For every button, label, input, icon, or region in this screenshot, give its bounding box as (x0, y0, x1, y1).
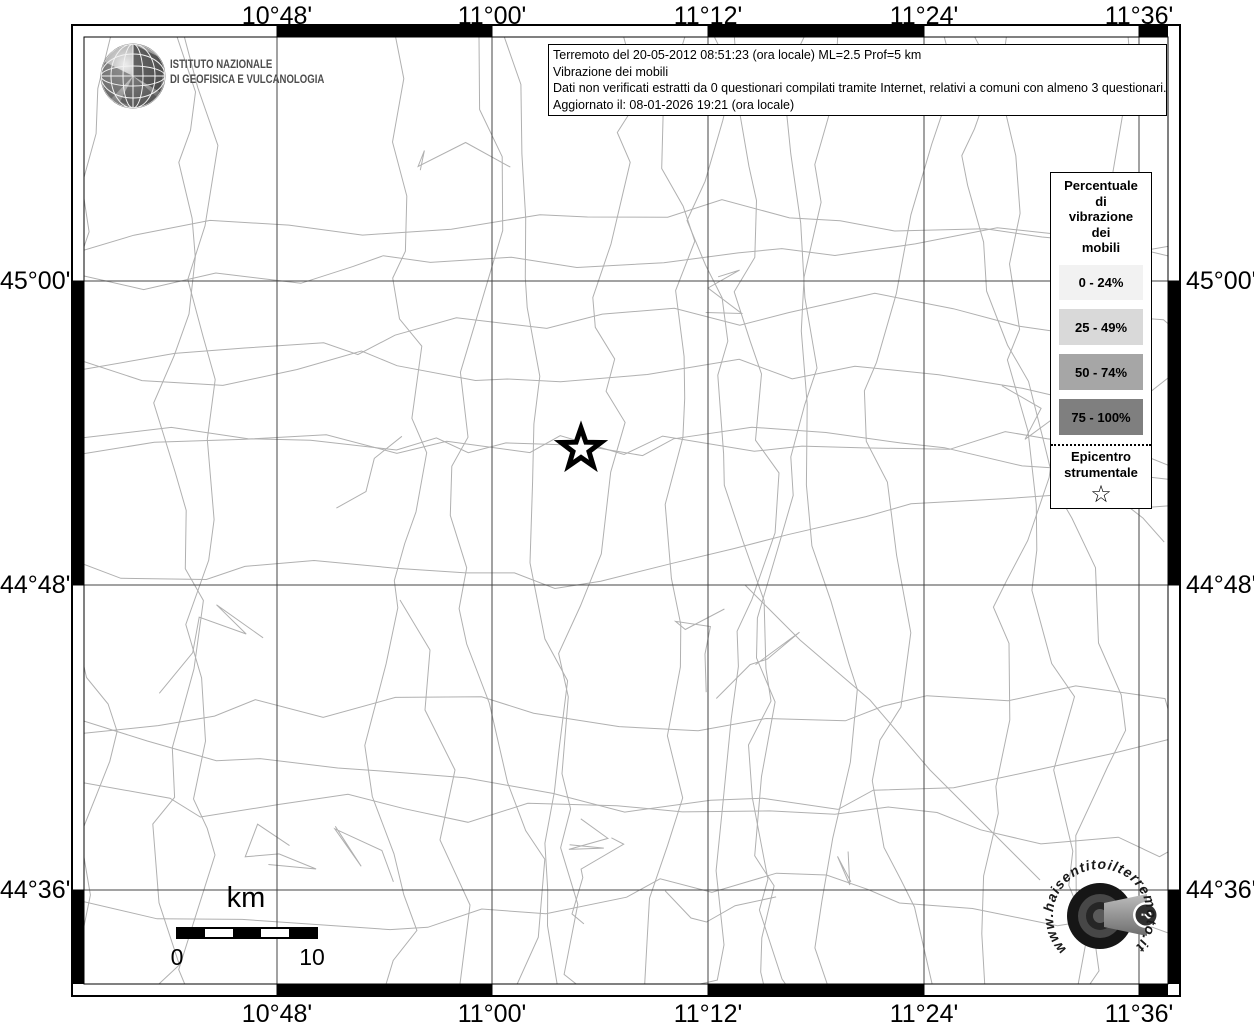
event-info-line-3: Dati non verificati estratti da 0 questi… (553, 80, 1162, 97)
legend-epicenter-line: strumentale (1064, 465, 1138, 481)
axis-label-left-4436: 44°36' (0, 876, 64, 905)
event-info-line-4: Aggiornato il: 08-01-2026 19:21 (ora loc… (553, 97, 1162, 114)
axis-label-top-1048: 10°48' (227, 2, 327, 31)
ingv-wordmark-line-2: DI GEOFISICA E VULCANOLOGIA (170, 72, 324, 87)
legend-title-line: dei (1064, 225, 1138, 241)
event-info-line-2: Vibrazione dei mobili (553, 64, 1162, 81)
scalebar-end-label: 10 (296, 944, 328, 971)
ingv-wordmark: ISTITUTO NAZIONALE DI GEOFISICA E VULCAN… (170, 57, 324, 87)
legend-title-line: vibrazione (1064, 209, 1138, 225)
scale-bar (177, 928, 317, 938)
axis-label-bottom-1136: 11°36' (1089, 1000, 1189, 1029)
legend-box: Percentuale di vibrazione dei mobili 0 -… (1050, 172, 1152, 509)
legend-star-icon: ☆ (1090, 482, 1112, 508)
haisentitoilterremoto-logo: ? www.haisentitoilterremoto.it (1040, 856, 1160, 958)
axis-label-left-4500: 45°00' (0, 267, 64, 296)
axis-label-bottom-1100: 11°00' (442, 1000, 542, 1029)
axis-label-left-4448: 44°48' (0, 571, 64, 600)
scalebar-start-label: 0 (165, 944, 189, 971)
legend-class-25-49: 25 - 49% (1059, 309, 1143, 345)
axis-label-bottom-1048: 10°48' (227, 1000, 327, 1029)
legend-title-line: mobili (1064, 240, 1138, 256)
event-info-box: Terremoto del 20-05-2012 08:51:23 (ora l… (548, 44, 1167, 116)
axis-label-right-4448: 44°48' (1186, 571, 1254, 600)
legend-class-75-100: 75 - 100% (1059, 399, 1143, 435)
event-info-line-1: Terremoto del 20-05-2012 08:51:23 (ora l… (553, 47, 1162, 64)
axis-label-top-1136: 11°36' (1089, 2, 1189, 31)
map-page: ? www.haisentitoilterremoto.it 10°48' 11… (0, 0, 1254, 1024)
legend-title-line: Percentuale (1064, 178, 1138, 194)
legend-epicenter-line: Epicentro (1064, 449, 1138, 465)
legend-class-50-74: 50 - 74% (1059, 354, 1143, 390)
legend-separator (1051, 444, 1151, 446)
legend-class-0-24: 0 - 24% (1059, 265, 1143, 301)
map-canvas: ? www.haisentitoilterremoto.it (0, 0, 1254, 1024)
legend-title-line: di (1064, 194, 1138, 210)
axis-label-bottom-1112: 11°12' (658, 1000, 758, 1029)
legend-epicenter-label: Epicentro strumentale (1064, 449, 1138, 480)
ingv-wordmark-line-1: ISTITUTO NAZIONALE (170, 57, 324, 72)
axis-label-top-1124: 11°24' (874, 2, 974, 31)
map-frame (72, 25, 1180, 996)
epicenter-star-marker (561, 428, 601, 466)
axis-label-top-1112: 11°12' (658, 2, 758, 31)
axis-label-bottom-1124: 11°24' (874, 1000, 974, 1029)
axis-label-top-1100: 11°00' (442, 2, 542, 31)
scalebar-unit-label: km (196, 882, 296, 915)
municipality-boundaries (60, 37, 1168, 984)
axis-label-right-4436: 44°36' (1186, 876, 1254, 905)
legend-title: Percentuale di vibrazione dei mobili (1064, 178, 1138, 256)
axis-label-right-4500: 45°00' (1186, 267, 1254, 296)
